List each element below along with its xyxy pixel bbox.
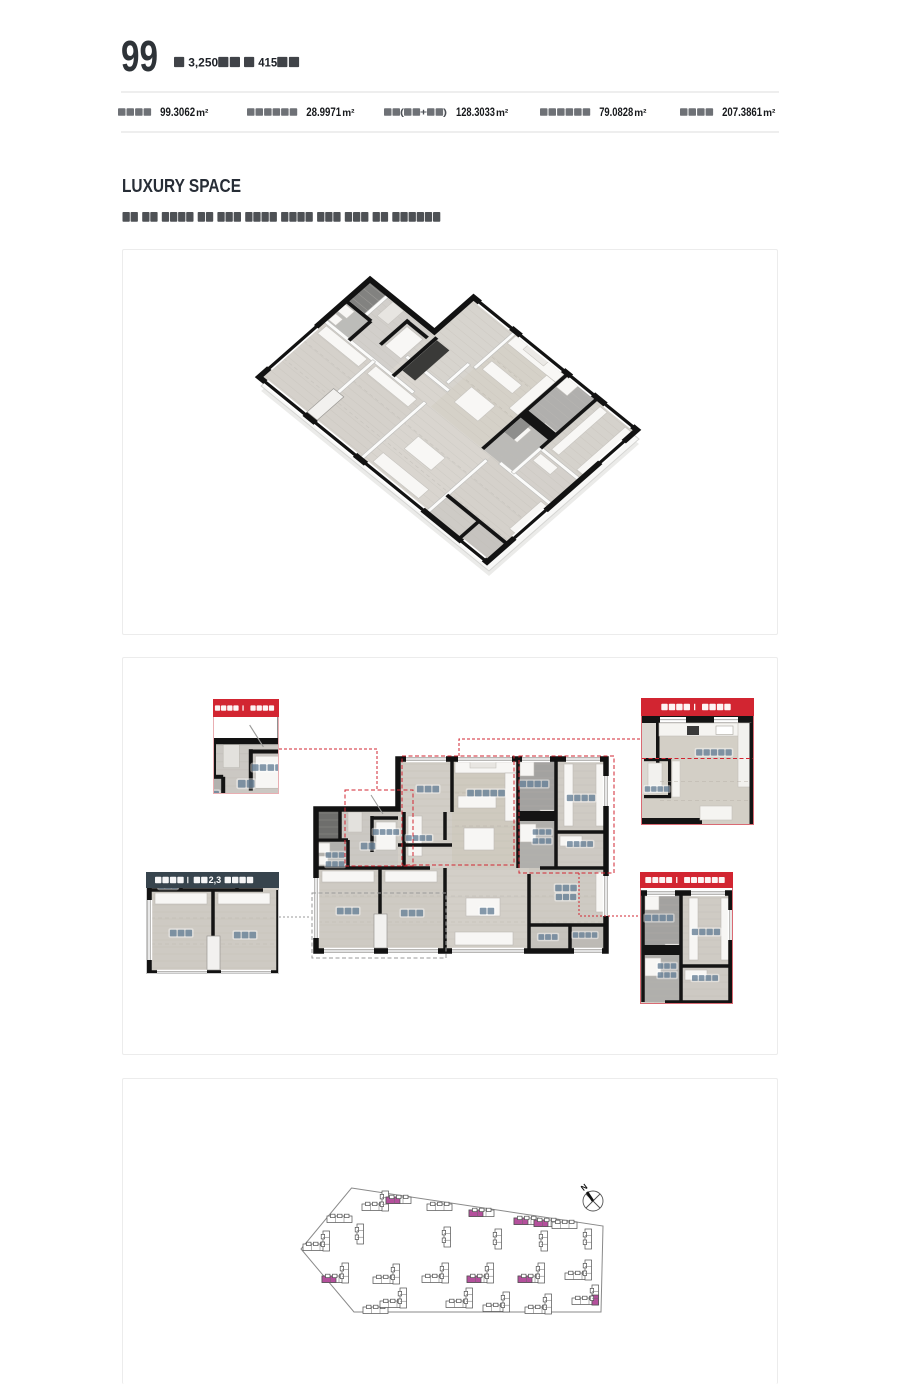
svg-text:m²: m²	[634, 108, 647, 119]
svg-text:m²: m²	[496, 108, 509, 119]
svg-text:m²: m²	[196, 108, 209, 119]
svg-text:): )	[443, 107, 447, 117]
svg-text:N: N	[579, 1182, 589, 1193]
svg-text:99.3062: 99.3062	[160, 105, 195, 119]
svg-text:(: (	[400, 107, 404, 117]
svg-text:128.3033: 128.3033	[456, 105, 495, 119]
svg-text:m²: m²	[763, 108, 776, 119]
svg-text:207.3861: 207.3861	[722, 105, 762, 119]
svg-text:79.0828: 79.0828	[599, 105, 633, 119]
svg-text:415: 415	[258, 55, 277, 69]
svg-text:99: 99	[121, 32, 158, 81]
svg-text:28.9971: 28.9971	[306, 105, 341, 119]
svg-text:LUXURY SPACE: LUXURY SPACE	[122, 176, 241, 196]
svg-text:m²: m²	[342, 108, 355, 119]
svg-text:2,3: 2,3	[209, 875, 222, 885]
svg-text:3,250: 3,250	[188, 55, 218, 69]
svg-text:+: +	[420, 107, 427, 117]
